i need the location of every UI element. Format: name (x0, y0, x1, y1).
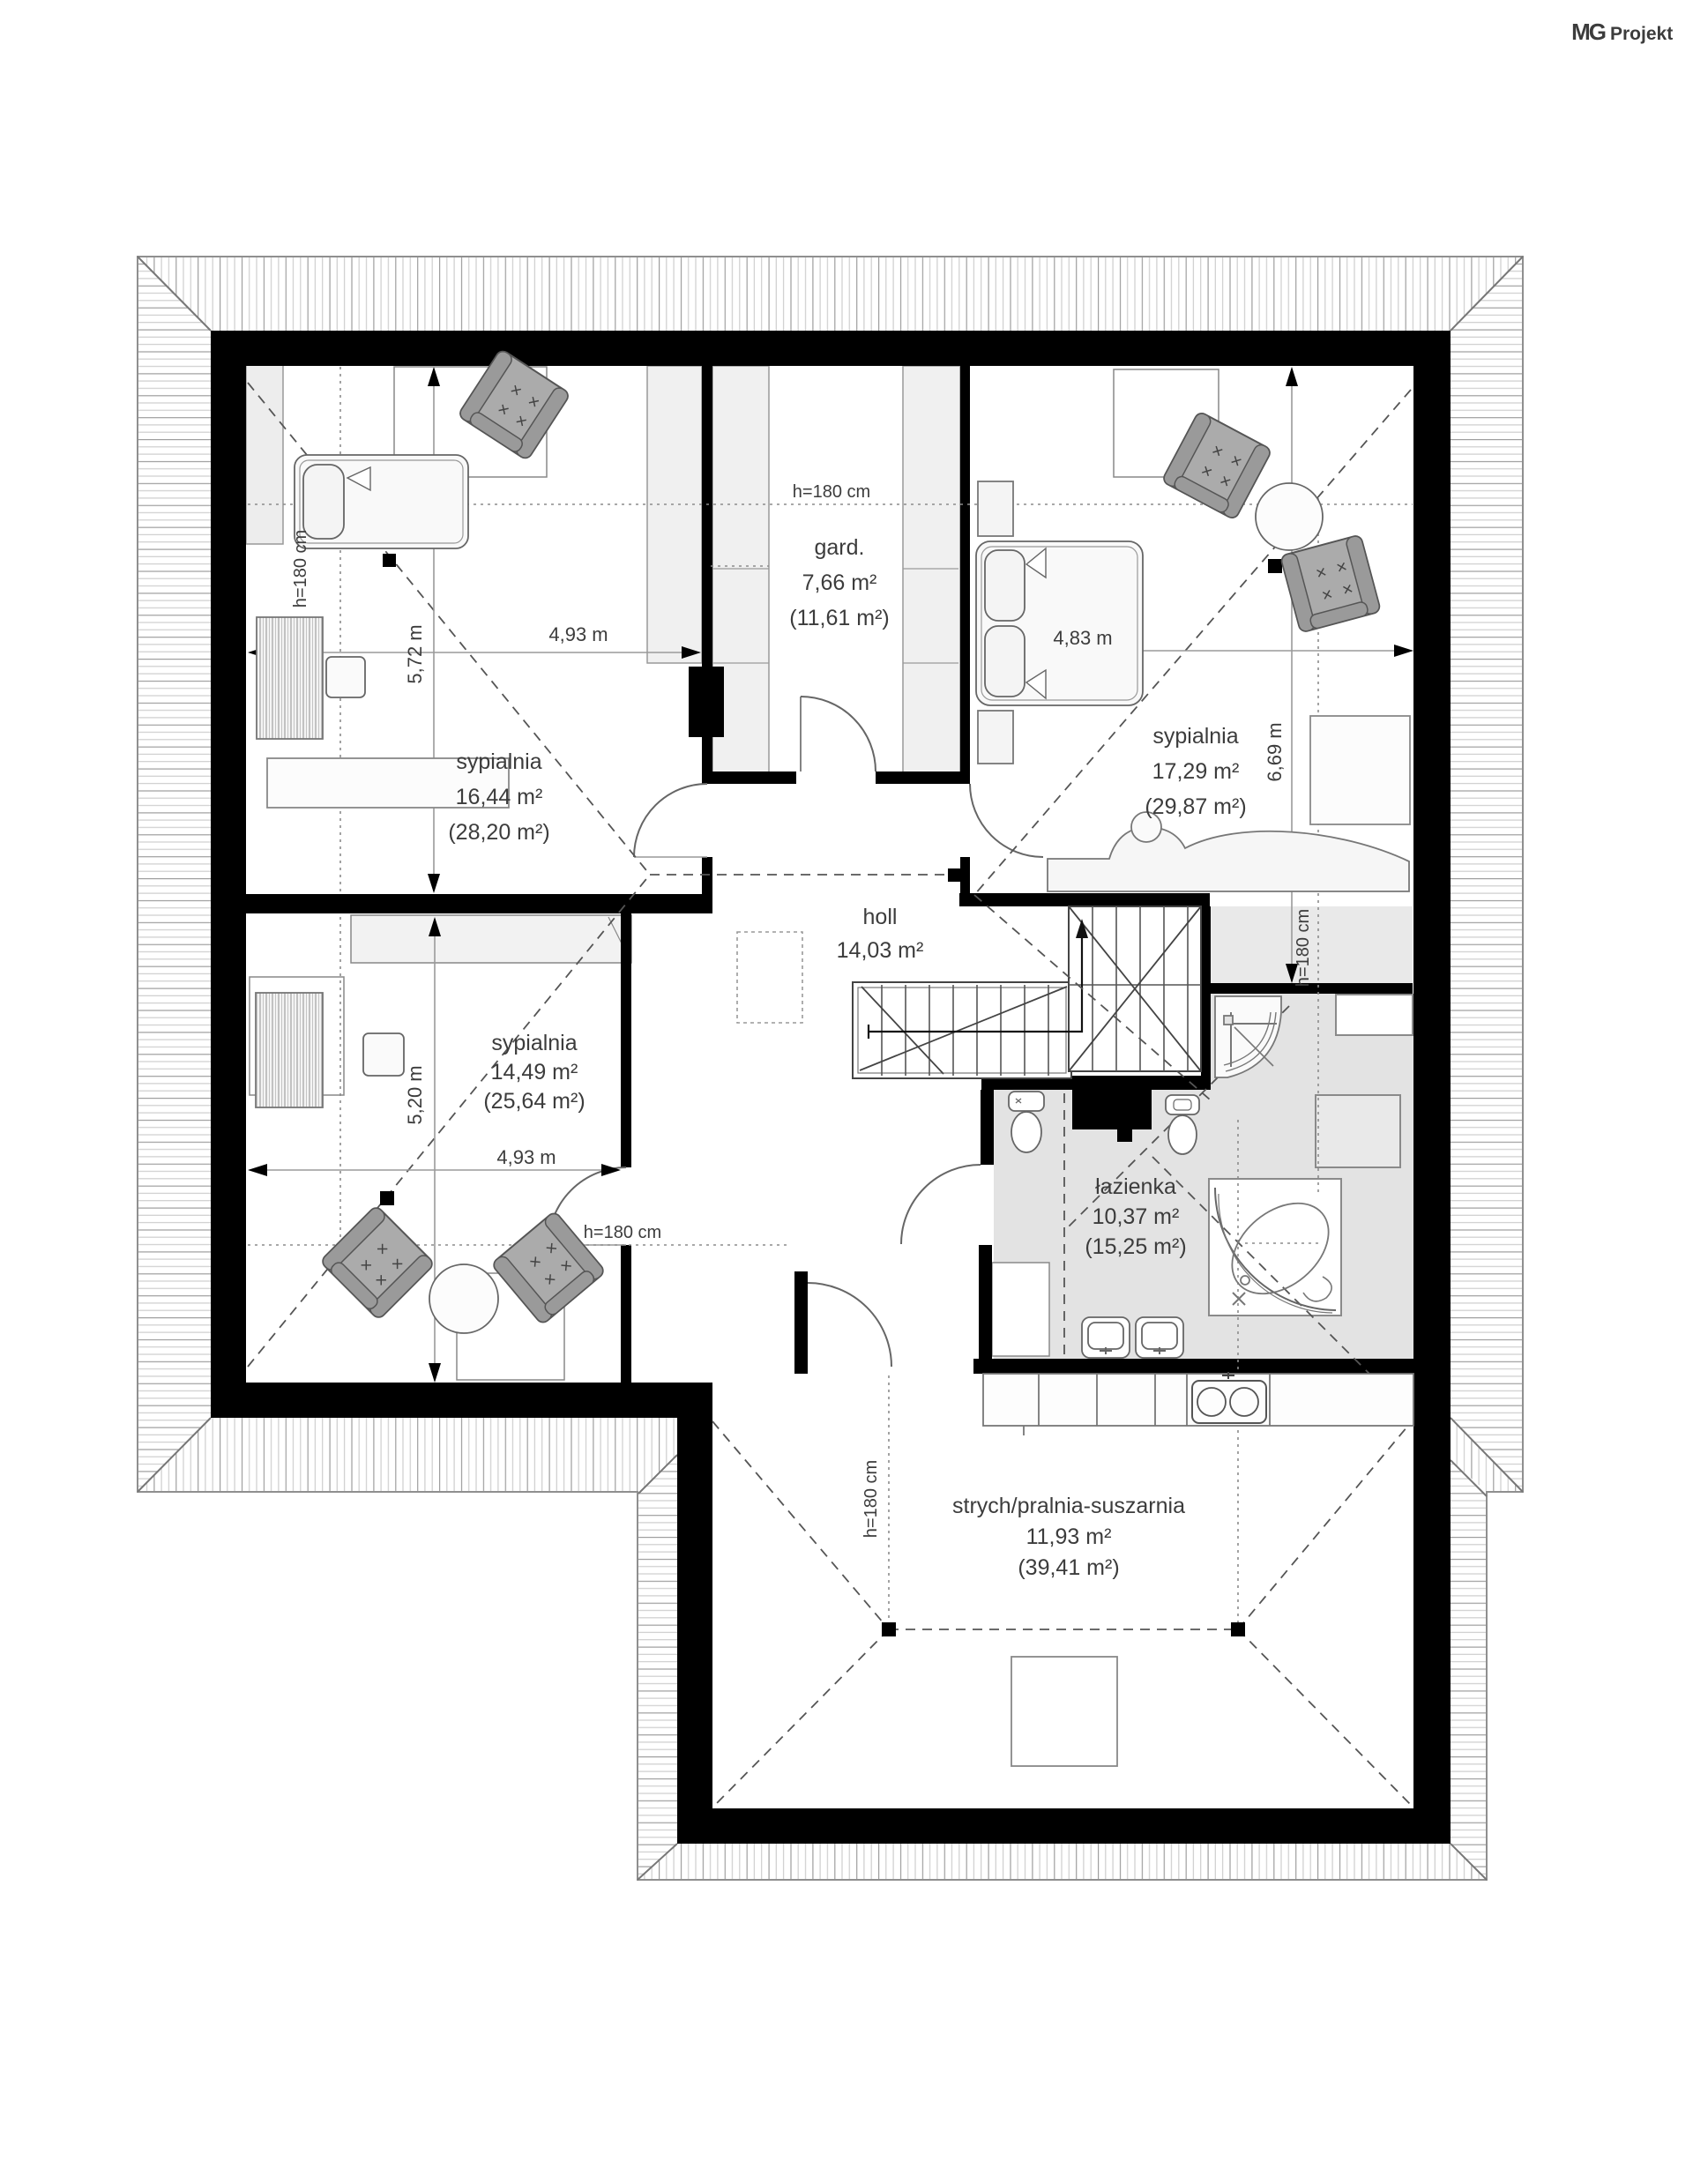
svg-text:(15,25 m²): (15,25 m²) (1085, 1234, 1186, 1259)
svg-text:łazienka: łazienka (1095, 1174, 1176, 1199)
svg-text:16,44 m²: 16,44 m² (456, 785, 543, 809)
svg-text:holl: holl (863, 905, 898, 929)
svg-text:gard.: gard. (815, 535, 865, 560)
svg-text:(39,41 m²): (39,41 m²) (1018, 1555, 1119, 1580)
svg-text:4,83 m: 4,83 m (1053, 627, 1112, 649)
svg-text:h=180 cm: h=180 cm (291, 530, 310, 607)
svg-text:17,29 m²: 17,29 m² (1152, 759, 1240, 784)
svg-text:7,66 m²: 7,66 m² (802, 570, 877, 595)
svg-text:10,37 m²: 10,37 m² (1093, 1204, 1180, 1229)
svg-text:sypialnia: sypialnia (491, 1031, 577, 1055)
svg-text:14,03 m²: 14,03 m² (837, 938, 924, 963)
svg-text:11,93 m²: 11,93 m² (1026, 1524, 1112, 1549)
svg-text:h=180 cm: h=180 cm (793, 482, 870, 502)
svg-text:h=180 cm: h=180 cm (1294, 909, 1313, 987)
svg-text:sypialnia: sypialnia (456, 749, 541, 774)
svg-text:(11,61 m²): (11,61 m²) (789, 606, 889, 630)
svg-text:5,20 m: 5,20 m (404, 1065, 426, 1124)
svg-text:6,69 m: 6,69 m (1264, 722, 1286, 781)
svg-text:14,49 m²: 14,49 m² (491, 1060, 578, 1085)
svg-text:MG: MG (1571, 19, 1606, 45)
svg-text:4,93 m: 4,93 m (548, 623, 608, 645)
svg-text:(29,87 m²): (29,87 m²) (1145, 794, 1246, 819)
svg-text:(28,20 m²): (28,20 m²) (448, 820, 549, 845)
svg-text:h=180 cm: h=180 cm (584, 1223, 661, 1242)
svg-text:(25,64 m²): (25,64 m²) (483, 1089, 585, 1114)
svg-text:5,72 m: 5,72 m (404, 624, 426, 683)
svg-text:Projekt: Projekt (1610, 24, 1673, 44)
svg-text:sypialnia: sypialnia (1152, 724, 1238, 749)
svg-text:4,93 m: 4,93 m (496, 1146, 556, 1168)
svg-text:strych/pralnia-suszarnia: strych/pralnia-suszarnia (952, 1494, 1185, 1518)
svg-text:h=180 cm: h=180 cm (861, 1460, 881, 1538)
